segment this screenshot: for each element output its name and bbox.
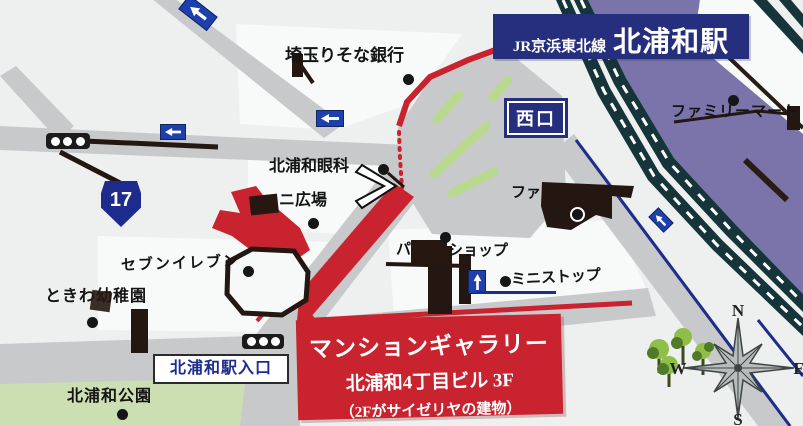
occluding-building-blob bbox=[411, 240, 447, 263]
poi-dot-eye-clinic bbox=[378, 164, 389, 175]
label-family-mart-w: ファ bbox=[511, 186, 541, 201]
signal-pole bbox=[60, 152, 122, 184]
traffic-light-icon bbox=[242, 334, 284, 349]
compass-east-label: E bbox=[793, 359, 803, 378]
poi-dot-park bbox=[117, 409, 128, 420]
destination-callout-box: マンションギャラリー 北浦和4丁目ビル 3F （2Fがサイゼリヤの建物） bbox=[296, 314, 563, 420]
poi-dot-kindergarten bbox=[87, 317, 98, 328]
station-name: 北浦和駅 bbox=[613, 20, 729, 60]
label-plaza: ニ広場 bbox=[279, 193, 327, 209]
occluding-building-blob bbox=[90, 290, 113, 313]
poi-dot-family-mart-w bbox=[570, 207, 585, 222]
building-slab-kindergarten bbox=[131, 309, 148, 353]
compass-west-label: W bbox=[670, 359, 687, 378]
west-exit-badge: 西口 bbox=[504, 98, 568, 138]
access-map: JR京浜東北線 北浦和駅 西口 17 北浦和駅入口 埼玉りそな銀行 北浦和眼科 … bbox=[0, 0, 803, 426]
poi-dot-family-mart-ne bbox=[728, 95, 739, 106]
occluding-building-blob bbox=[249, 194, 279, 216]
one-way-left-sign-icon bbox=[316, 110, 344, 127]
poi-dot-seven-eleven bbox=[243, 266, 254, 277]
destination-building: 北浦和4丁目ビル 3F bbox=[297, 364, 563, 397]
poi-dot-bank bbox=[403, 74, 414, 85]
poi-dot-plaza bbox=[308, 218, 319, 229]
building-edge-shop bbox=[386, 264, 468, 266]
poi-dot-ministop bbox=[500, 276, 511, 287]
label-park: 北浦和公園 bbox=[67, 389, 152, 405]
rail-line-name: JR京浜東北線 bbox=[513, 35, 606, 56]
poi-dot-shop bbox=[440, 232, 451, 243]
compass-rose-icon: N S W E bbox=[668, 300, 803, 426]
one-way-guide-line bbox=[476, 291, 556, 294]
label-family-mart-ne: ファミリーマート bbox=[671, 105, 799, 120]
west-exit-label: 西口 bbox=[507, 101, 565, 135]
station-entrance-sign: 北浦和駅入口 bbox=[153, 354, 289, 384]
label-eye-clinic: 北浦和眼科 bbox=[269, 159, 349, 175]
label-shop-prefix: パ bbox=[396, 243, 411, 258]
compass-south-label: S bbox=[733, 410, 742, 426]
traffic-light-icon bbox=[46, 133, 90, 149]
station-banner: JR京浜東北線 北浦和駅 bbox=[493, 14, 749, 59]
one-way-left-sign-icon bbox=[160, 124, 186, 140]
compass-north-label: N bbox=[732, 301, 745, 320]
label-shop-suffix: ショップ bbox=[448, 244, 508, 259]
destination-title: マンションギャラリー bbox=[296, 324, 562, 364]
label-bank: 埼玉りそな銀行 bbox=[285, 47, 404, 64]
